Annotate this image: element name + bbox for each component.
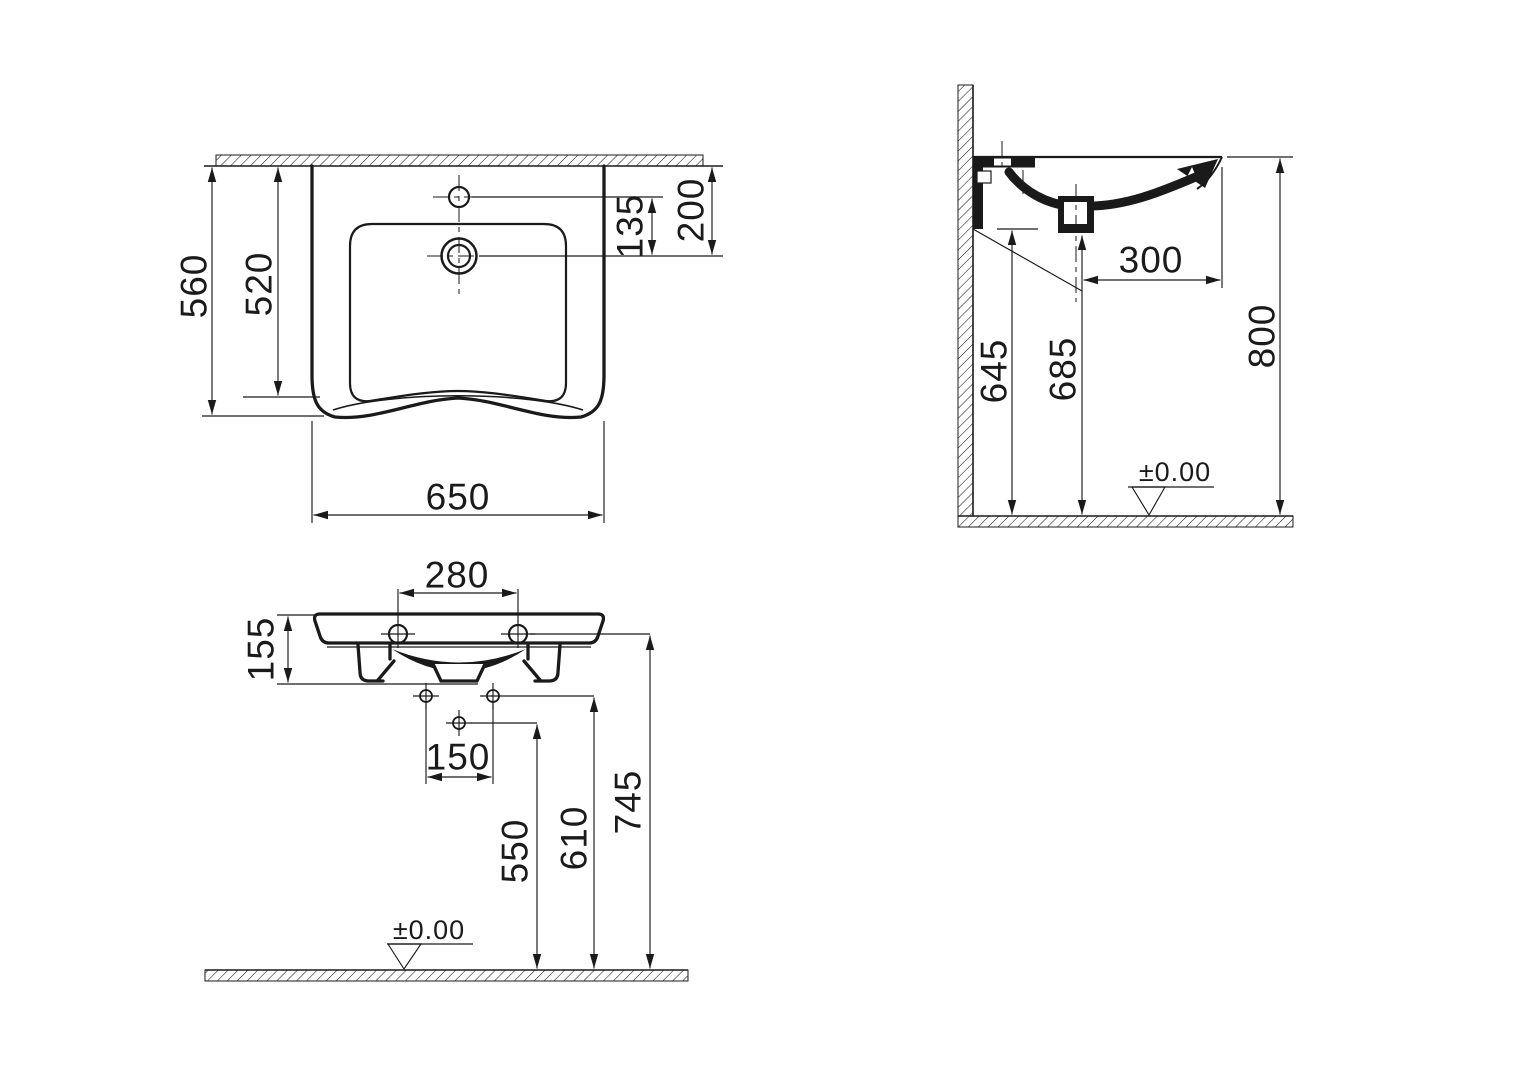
dim-side-underside-height: 645 bbox=[974, 339, 1015, 404]
fixing-hole-notch bbox=[977, 171, 991, 183]
dim-side-drain-offset: 300 bbox=[1119, 240, 1184, 281]
bowl-section-band bbox=[1009, 172, 1198, 206]
side-datum-label: ±0.00 bbox=[1139, 457, 1211, 487]
bottom-right-foot bbox=[535, 645, 560, 681]
bottom-floor-datum: ±0.00 bbox=[387, 915, 473, 969]
basin-inner-rim bbox=[350, 224, 566, 401]
dim-side-drain-height: 685 bbox=[1043, 337, 1084, 402]
bottom-datum-triangle bbox=[388, 944, 421, 969]
side-wall-hatch bbox=[958, 85, 973, 516]
dim-front-inner-depth: 520 bbox=[239, 252, 280, 317]
dim-bottom-body-depth: 155 bbox=[241, 617, 282, 682]
bottom-floor-hatch bbox=[205, 970, 688, 981]
dim-bottom-fixing-hole-spacing: 280 bbox=[425, 555, 490, 596]
dim-bottom-bracket-hole-height: 610 bbox=[554, 806, 595, 871]
dim-front-overall-width: 650 bbox=[426, 477, 491, 518]
side-floor-hatch bbox=[958, 516, 1293, 527]
bottom-datum-label: ±0.00 bbox=[393, 915, 465, 945]
dim-side-rim-height: 800 bbox=[1242, 304, 1283, 369]
dim-front-overall-height: 560 bbox=[174, 254, 215, 319]
washbasin-technical-drawing: 560 520 135 200 650 bbox=[0, 0, 1530, 1080]
side-floor-datum: ±0.00 bbox=[1128, 457, 1214, 515]
technical-drawing-sheet: 560 520 135 200 650 bbox=[0, 0, 1530, 1080]
front-wall-hatch bbox=[216, 155, 703, 166]
dim-front-tap-to-drain: 135 bbox=[610, 194, 651, 259]
side-datum-triangle bbox=[1132, 487, 1165, 515]
dim-bottom-bracket-hole-spacing: 150 bbox=[426, 737, 491, 778]
basin-outer-outline bbox=[312, 166, 604, 418]
bottom-left-foot bbox=[358, 645, 383, 681]
bottom-dimension-lines bbox=[288, 593, 650, 969]
bottom-band-outline bbox=[315, 614, 604, 643]
dim-bottom-fixing-hole-height: 745 bbox=[608, 770, 649, 835]
dim-front-rim-to-drain: 200 bbox=[671, 178, 712, 243]
bottom-view: 280 155 150 550 610 745 ±0.00 bbox=[205, 555, 688, 982]
bracket-holes bbox=[413, 683, 506, 736]
front-view: 560 520 135 200 650 bbox=[174, 155, 724, 523]
underside-slant-line bbox=[973, 229, 1082, 291]
dim-bottom-lower-hole-height: 550 bbox=[495, 819, 536, 884]
bottom-drain-boss bbox=[433, 664, 485, 681]
side-section-view: 300 645 685 800 ±0.00 bbox=[958, 85, 1293, 527]
